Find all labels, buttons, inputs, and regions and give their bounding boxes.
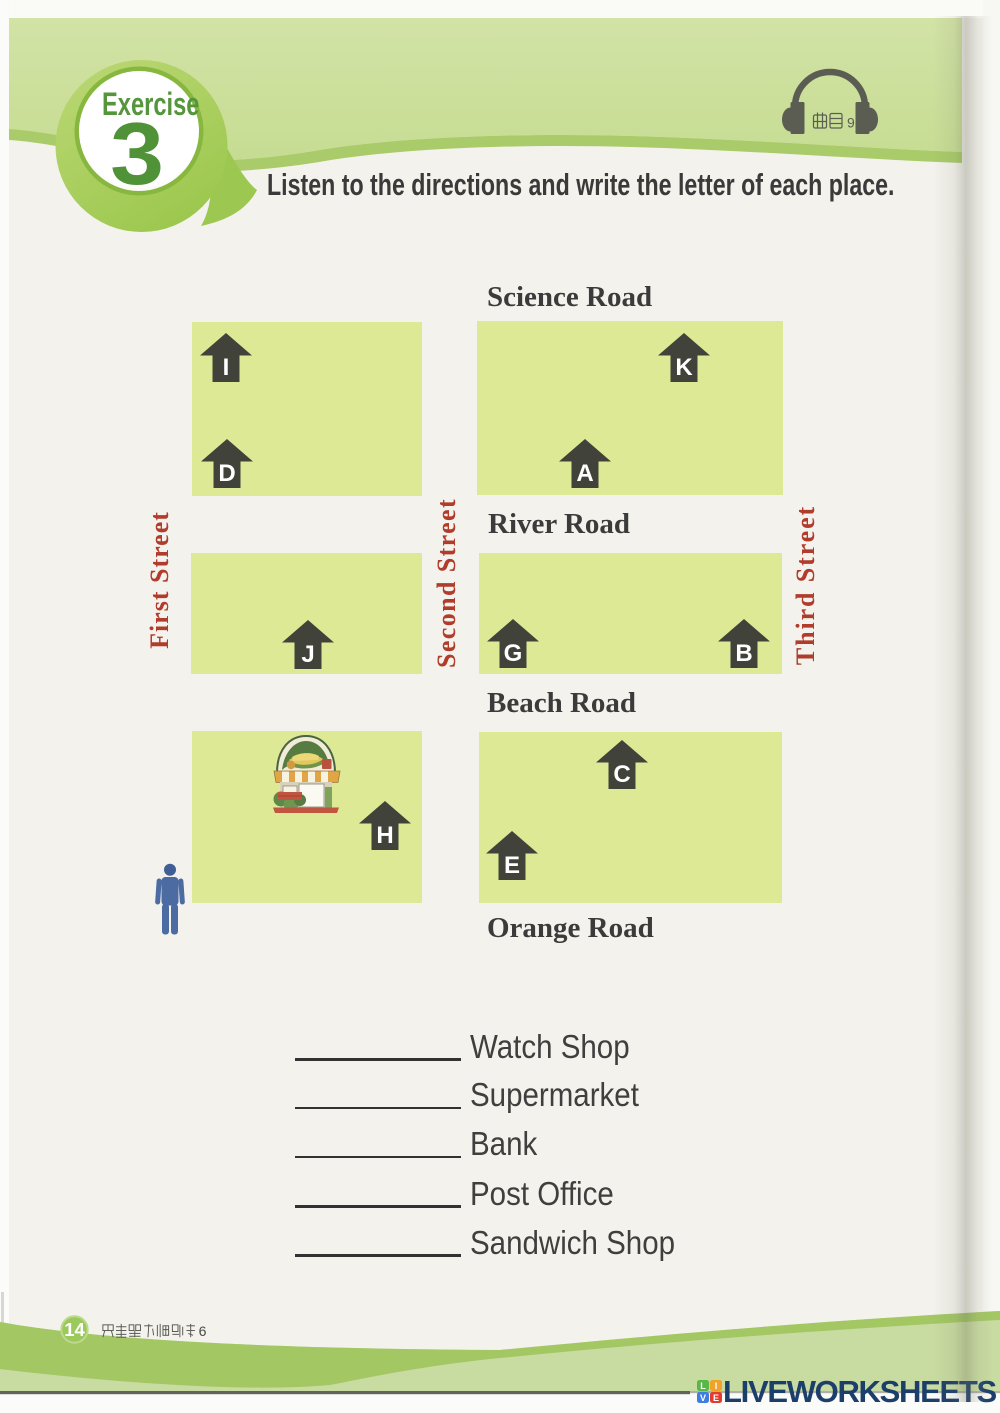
svg-text:L: L — [700, 1381, 706, 1391]
svg-text:E: E — [504, 852, 520, 879]
svg-text:A: A — [576, 460, 593, 487]
svg-text:J: J — [301, 641, 314, 668]
svg-text:E: E — [713, 1393, 719, 1403]
svg-text:G: G — [503, 640, 522, 667]
svg-text:B: B — [735, 640, 752, 667]
svg-text:I: I — [715, 1381, 718, 1391]
svg-text:V: V — [700, 1393, 706, 1403]
svg-text:9: 9 — [847, 115, 855, 131]
svg-text:6: 6 — [199, 1324, 207, 1340]
svg-text:14: 14 — [64, 1319, 85, 1340]
svg-text:H: H — [376, 822, 393, 849]
svg-text:D: D — [218, 460, 235, 487]
svg-text:K: K — [675, 354, 693, 381]
svg-text:I: I — [222, 354, 229, 381]
svg-text:C: C — [613, 761, 630, 788]
